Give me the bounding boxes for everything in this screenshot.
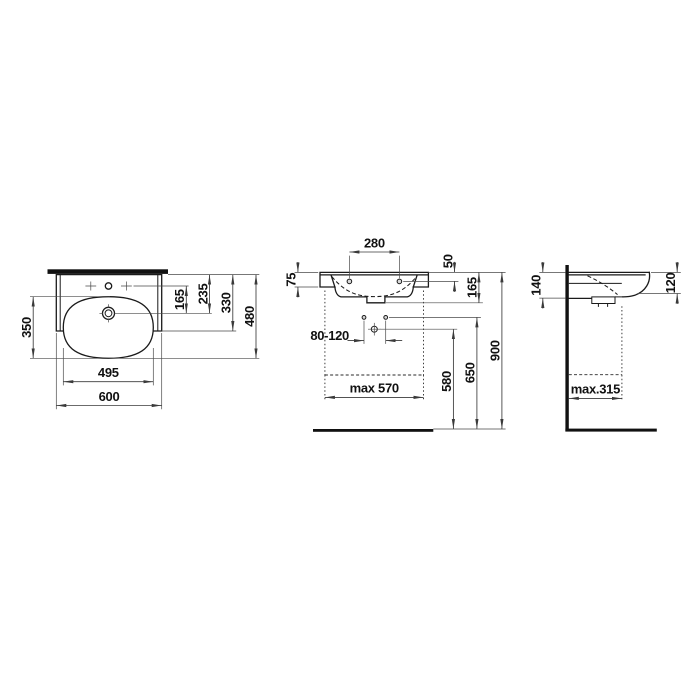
wall-edge-bar (48, 269, 169, 274)
dim-trap-height: 580 (380, 329, 457, 429)
dim-rear-to-drain: 235 (195, 275, 210, 314)
dim-max-clearance-depth: max.315 (569, 382, 622, 399)
dim-fixing-height: 650 (389, 317, 481, 429)
fixing-hole-left (347, 279, 352, 284)
washbasin-technical-drawing-page: 350 165 235 330 480 495 (0, 0, 700, 700)
bracket-screw-right (384, 316, 388, 320)
dim-label-235: 235 (195, 284, 210, 305)
floor-line-side (565, 429, 656, 432)
dim-bracket-spacing: 80-120 (310, 321, 402, 344)
dim-label-495: 495 (98, 365, 119, 380)
basin-front-outline (313, 272, 433, 431)
drain-position-mark (368, 323, 381, 336)
dim-label-140: 140 (529, 275, 544, 296)
side-dimensions: 140 120 max.315 (529, 262, 681, 398)
fixing-hole-right (397, 279, 402, 284)
basin-plan-outline (48, 269, 169, 358)
dim-label-75: 75 (284, 273, 299, 287)
dim-bowl-depth: 350 (19, 297, 34, 359)
dim-label-900: 900 (488, 340, 503, 361)
dim-label-330: 330 (219, 292, 234, 313)
dim-label-650: 650 (463, 362, 478, 383)
dim-label-max570: max 570 (350, 381, 399, 396)
side-view: 140 120 max.315 (529, 262, 681, 432)
dim-label-50: 50 (440, 254, 455, 268)
washbasin-technical-drawing: 350 165 235 330 480 495 (0, 0, 700, 700)
floor-line-front (313, 429, 433, 432)
front-view: 280 75 50 165 (284, 236, 506, 432)
dim-label-580: 580 (439, 371, 454, 392)
dim-body-depth: 330 (219, 275, 234, 331)
dim-label-350: 350 (19, 317, 34, 338)
rim-profile (569, 272, 650, 275)
bowl-hidden-curve (332, 277, 417, 297)
dim-depth-at-wall: 140 (529, 262, 566, 309)
dim-rim-to-holes: 50 (403, 254, 458, 292)
rim-and-flanges (320, 272, 428, 287)
dim-label-165-plan: 165 (172, 289, 187, 310)
dim-label-80-120: 80-120 (310, 328, 349, 343)
basin-side-outline (565, 265, 656, 432)
drain-trap (592, 297, 615, 304)
dim-apron-height: 165 (386, 272, 483, 302)
dim-tap-to-drain: 165 (172, 286, 187, 313)
dim-label-480: 480 (242, 306, 257, 327)
front-dimensions: 280 75 50 165 (284, 236, 506, 429)
dim-label-max315: max.315 (571, 382, 620, 397)
dim-front-edge-height: 120 (638, 262, 681, 304)
dim-flange-height: 75 (284, 262, 319, 297)
wall-line (565, 265, 568, 431)
dim-label-600: 600 (99, 389, 120, 404)
dim-label-120: 120 (663, 273, 678, 294)
bracket-screw-left (362, 316, 366, 320)
dim-total-depth: 480 (242, 275, 257, 359)
dim-label-280: 280 (364, 236, 385, 251)
tap-hole (105, 283, 111, 289)
dim-label-165-front: 165 (465, 277, 480, 298)
bowl-slope-hidden (588, 276, 618, 295)
top-view: 350 165 235 330 480 495 (19, 269, 259, 409)
dim-max-clearance-width: max 570 (325, 381, 424, 398)
